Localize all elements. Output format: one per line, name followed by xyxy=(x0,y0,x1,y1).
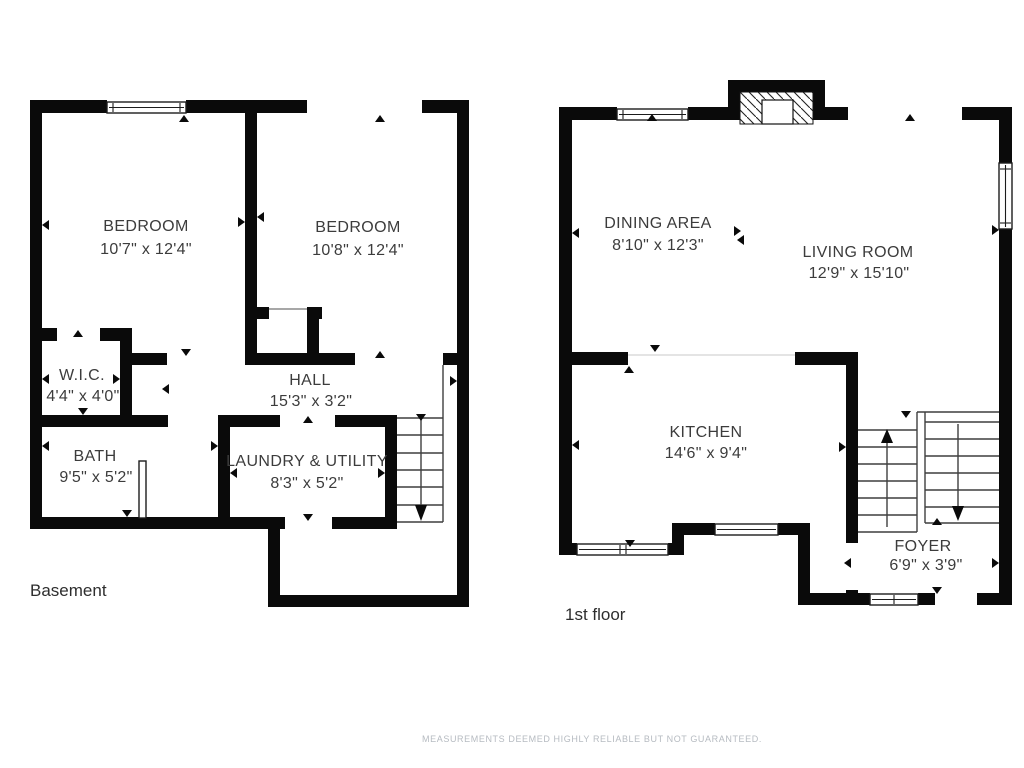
room-label-hall: HALL xyxy=(289,372,331,389)
fireplace-icon xyxy=(740,92,813,124)
room-label-kitchen: KITCHEN xyxy=(669,424,742,441)
basement-walls xyxy=(30,100,469,607)
room-label-wic: W.I.C. xyxy=(59,367,105,384)
first-floor-room-labels: DINING AREA 8'10" x 12'3" LIVING ROOM 12… xyxy=(604,215,962,574)
first-floor-walls xyxy=(559,80,1012,605)
room-label-laundry: LAUNDRY & UTILITY xyxy=(226,453,388,470)
room-dims-foyer: 6'9" x 3'9" xyxy=(889,557,962,574)
basement-stairs-icon xyxy=(397,365,443,522)
room-label-living-room: LIVING ROOM xyxy=(802,244,913,261)
first-floor-title: 1st floor xyxy=(565,605,626,624)
room-label-foyer: FOYER xyxy=(894,538,951,555)
basement-plan: BEDROOM 10'7" x 12'4" BEDROOM 10'8" x 12… xyxy=(30,100,469,607)
first-floor-plan: DINING AREA 8'10" x 12'3" LIVING ROOM 12… xyxy=(559,80,1012,624)
room-dims-living-room: 12'9" x 15'10" xyxy=(809,265,910,282)
basement-title: Basement xyxy=(30,581,107,600)
floorplan-page: BEDROOM 10'7" x 12'4" BEDROOM 10'8" x 12… xyxy=(0,0,1024,768)
room-dims-kitchen: 14'6" x 9'4" xyxy=(665,445,747,462)
room-dims-bath: 9'5" x 5'2" xyxy=(59,469,132,486)
floorplan-canvas: BEDROOM 10'7" x 12'4" BEDROOM 10'8" x 12… xyxy=(0,0,1024,768)
room-dims-dining-area: 8'10" x 12'3" xyxy=(612,237,704,254)
first-floor-stairs-icon xyxy=(858,412,999,532)
room-dims-bedroom-1: 10'7" x 12'4" xyxy=(100,241,192,258)
room-dims-laundry: 8'3" x 5'2" xyxy=(270,475,343,492)
room-dims-hall: 15'3" x 3'2" xyxy=(270,393,352,410)
room-label-bedroom-2: BEDROOM xyxy=(315,219,400,236)
room-dims-bedroom-2: 10'8" x 12'4" xyxy=(312,242,404,259)
room-label-dining-area: DINING AREA xyxy=(604,215,712,232)
basement-window-icon xyxy=(107,102,186,113)
shower-partition-icon xyxy=(139,461,146,518)
disclaimer-text: MEASUREMENTS DEEMED HIGHLY RELIABLE BUT … xyxy=(422,734,762,744)
first-floor-opening-markers xyxy=(572,114,999,594)
room-label-bedroom-1: BEDROOM xyxy=(103,218,188,235)
room-label-bath: BATH xyxy=(73,448,116,465)
room-dims-wic: 4'4" x 4'0" xyxy=(46,388,119,405)
